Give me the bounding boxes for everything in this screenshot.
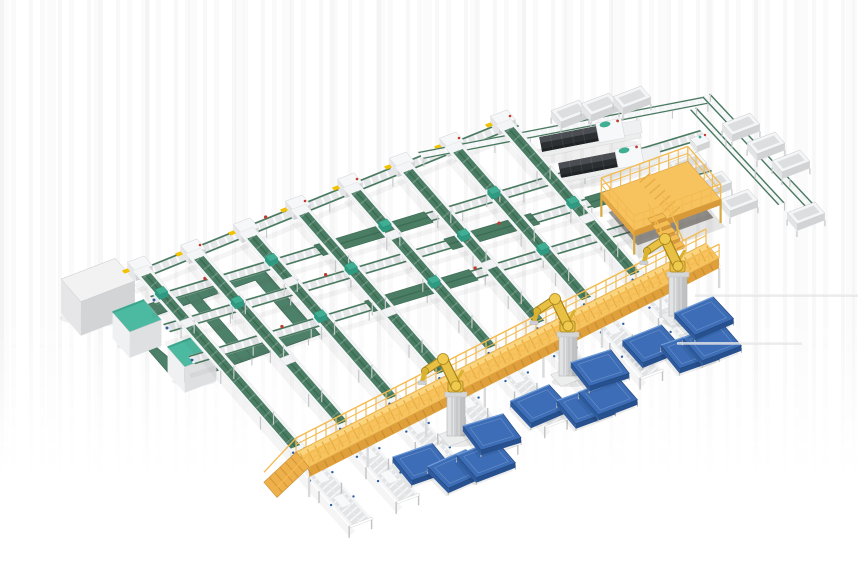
tray-station xyxy=(787,202,825,237)
tray-station xyxy=(720,189,758,224)
sensor-dot xyxy=(280,325,283,328)
factory-3d-render xyxy=(0,0,860,580)
sensor-dot xyxy=(324,273,327,276)
production-line-scene xyxy=(0,0,860,580)
sensor-dot xyxy=(264,215,267,218)
